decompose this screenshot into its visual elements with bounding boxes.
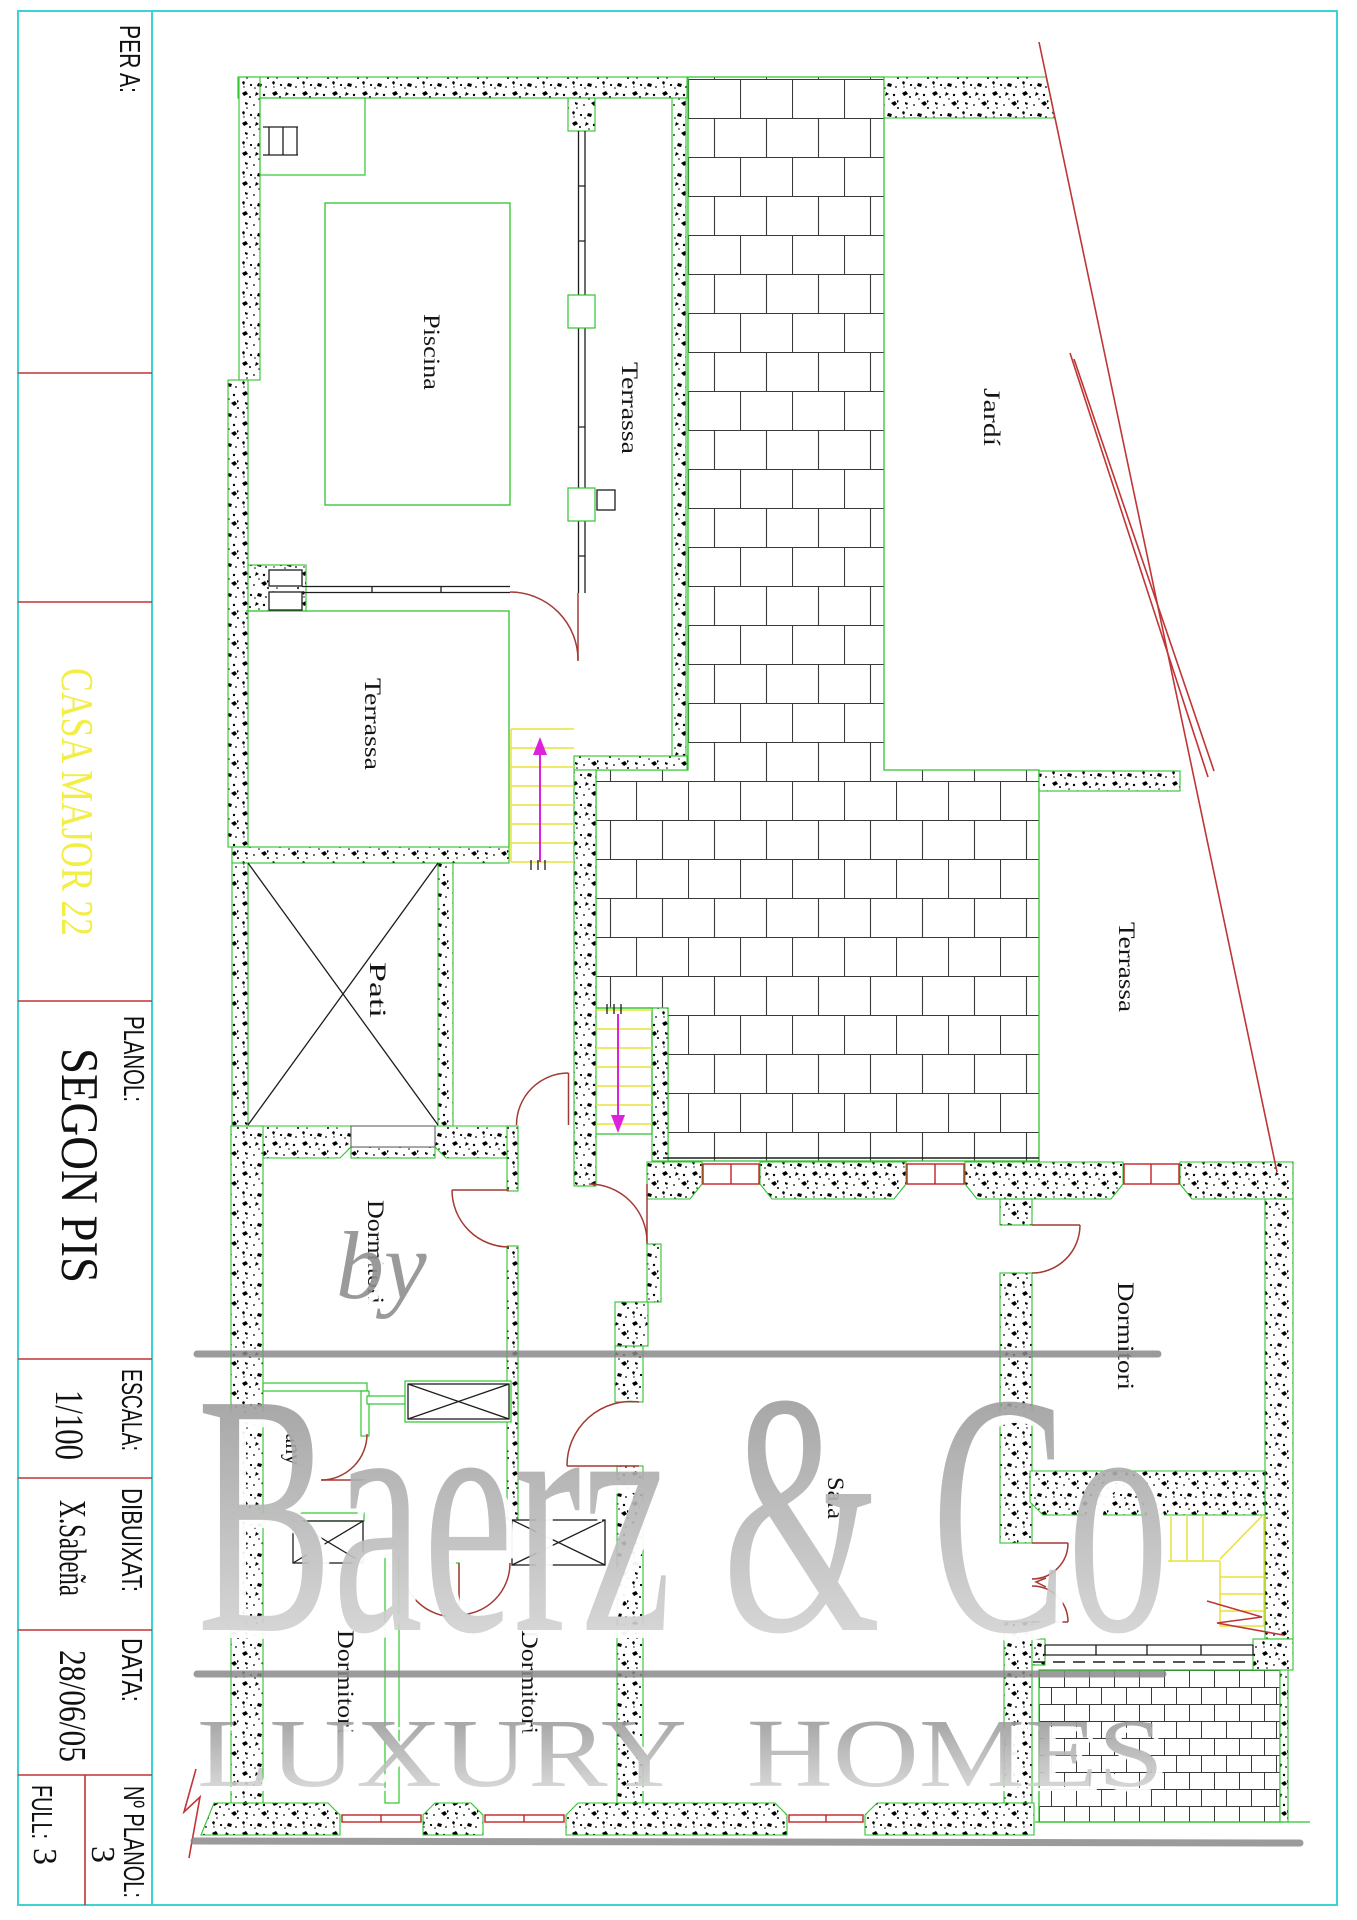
svg-text:1/100: 1/100 bbox=[47, 1390, 92, 1460]
svg-text:Terrassa: Terrassa bbox=[360, 678, 385, 770]
svg-text:CASA MAJOR 22: CASA MAJOR 22 bbox=[52, 668, 103, 936]
svg-text:X.Sabeña: X.Sabeña bbox=[51, 1500, 93, 1596]
svg-text:Nº PLANOL:: Nº PLANOL: bbox=[117, 1786, 149, 1898]
svg-text:3: 3 bbox=[26, 1848, 63, 1865]
svg-text:DIBUIXAT:: DIBUIXAT: bbox=[115, 1488, 147, 1592]
svg-text:Jardí: Jardí bbox=[979, 388, 1004, 447]
svg-text:Piscina: Piscina bbox=[419, 314, 444, 390]
svg-text:Terrassa: Terrassa bbox=[1114, 922, 1139, 1012]
svg-text:PER A:: PER A: bbox=[113, 25, 145, 93]
svg-text:28/06/05: 28/06/05 bbox=[51, 1650, 93, 1762]
svg-text:3: 3 bbox=[84, 1846, 121, 1863]
svg-text:Baerz & Co: Baerz & Co bbox=[197, 1323, 1169, 1705]
svg-text:Pati: Pati bbox=[365, 962, 390, 1018]
svg-text:ESCALA:: ESCALA: bbox=[115, 1369, 147, 1451]
svg-text:Terrassa: Terrassa bbox=[617, 362, 642, 454]
svg-text:LUXURY HOMES: LUXURY HOMES bbox=[197, 1700, 1164, 1807]
svg-text:SEGON PIS: SEGON PIS bbox=[50, 1048, 108, 1283]
svg-text:FULL:: FULL: bbox=[25, 1785, 57, 1839]
svg-text:PLANOL:: PLANOL: bbox=[117, 1016, 149, 1102]
svg-text:by: by bbox=[336, 1212, 427, 1319]
svg-text:DATA:: DATA: bbox=[115, 1638, 147, 1702]
